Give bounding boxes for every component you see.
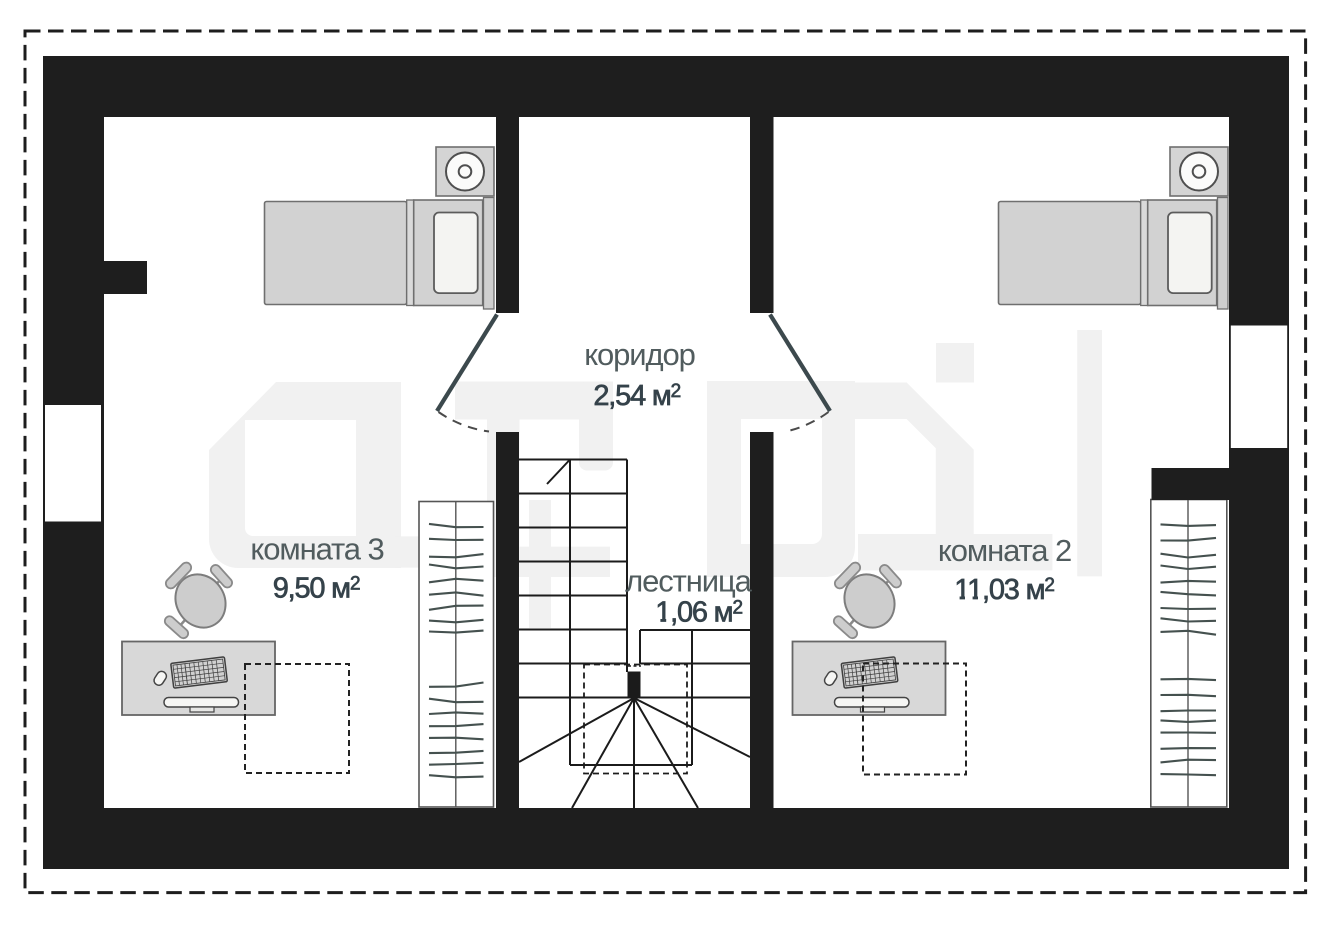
svg-text:лестница: лестница	[625, 564, 753, 599]
svg-text:комната 3: комната 3	[250, 532, 383, 567]
svg-text:2,54 м2: 2,54 м2	[593, 380, 680, 412]
svg-text:11,03 м2: 11,03 м2	[954, 574, 1054, 606]
svg-text:9,50 м2: 9,50 м2	[273, 573, 360, 605]
svg-text:коридор: коридор	[584, 337, 695, 372]
svg-text:комната 2: комната 2	[938, 533, 1071, 568]
svg-text:1,06 м2: 1,06 м2	[655, 597, 742, 629]
